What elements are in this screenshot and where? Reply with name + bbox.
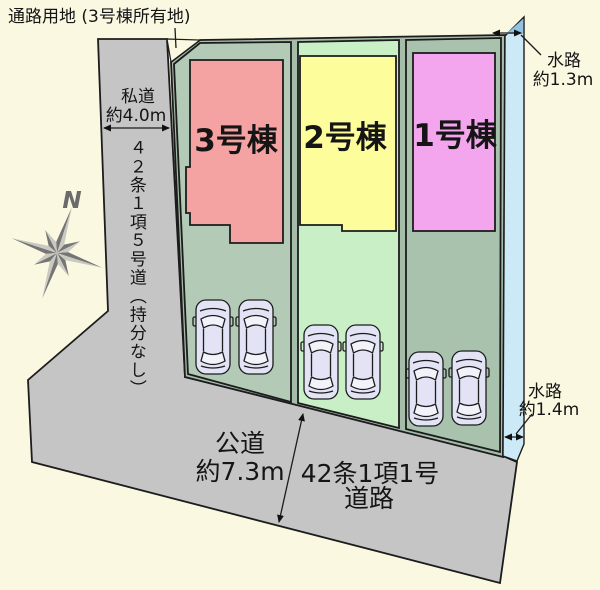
waterway-area xyxy=(503,17,524,461)
building-3-label: 3号棟 xyxy=(194,123,279,159)
car-icon xyxy=(343,325,383,399)
public-road-width: 約7.3m xyxy=(195,457,284,486)
waterway-top-width: 約1.3m xyxy=(533,70,594,90)
waterway-bottom-name: 水路 xyxy=(528,382,562,402)
compass-rose-icon xyxy=(0,193,117,314)
waterway-bottom-width: 約1.4m xyxy=(519,400,580,420)
compass-north-label: N xyxy=(62,188,81,214)
public-road-name: 公道 xyxy=(215,429,265,458)
passage-label: 通路用地 (3号棟所有地) xyxy=(8,7,190,27)
car-icon xyxy=(449,351,489,425)
private-road-name: 私道 xyxy=(121,87,155,107)
car-icon xyxy=(406,352,446,426)
car-icon xyxy=(301,325,341,399)
building-2-label: 2号棟 xyxy=(303,120,388,156)
waterway-top-name: 水路 xyxy=(547,51,581,71)
building-1-label: 1号棟 xyxy=(413,118,498,154)
site-plan-canvas: N 通路用地 (3号棟所有地) 私道 約4.0m 3号棟 2号棟 1号棟 水路 … xyxy=(0,0,600,590)
car-icon xyxy=(193,300,233,374)
public-road-class-line2: 道路 xyxy=(344,484,394,513)
site-plan-drawing: N 通路用地 (3号棟所有地) 私道 約4.0m 3号棟 2号棟 1号棟 水路 … xyxy=(0,0,600,590)
private-road-width: 約4.0m xyxy=(106,106,167,126)
car-icon xyxy=(236,300,276,374)
private-road-class-label: ４２条１項５号道（持分なし） xyxy=(126,139,144,409)
